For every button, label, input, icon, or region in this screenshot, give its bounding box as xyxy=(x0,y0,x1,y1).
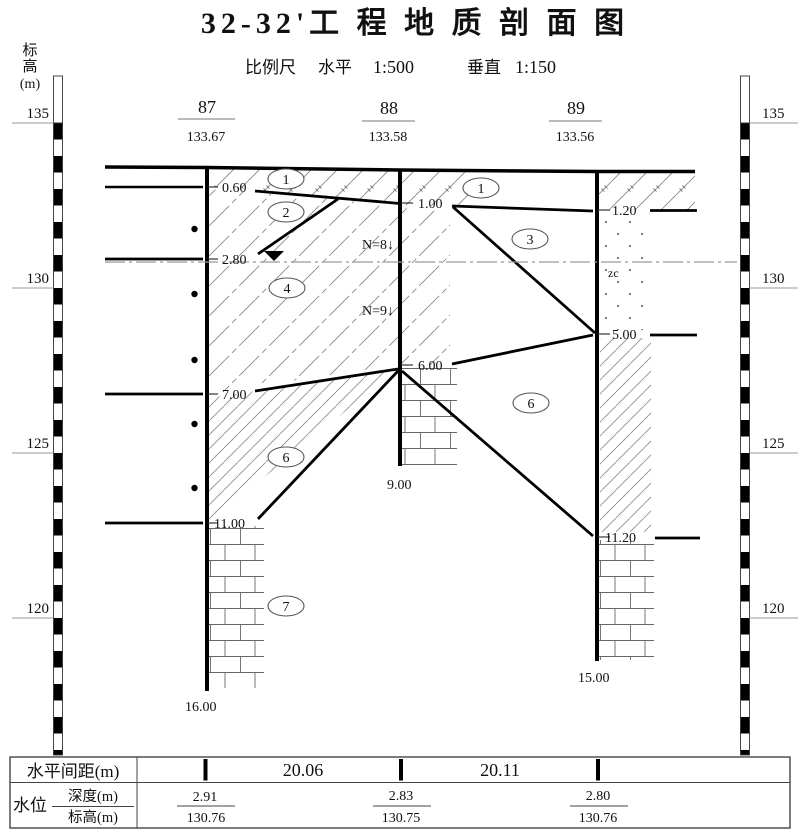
scale-bar-text: 比例尺 水平 1:500 垂直 1:150 xyxy=(245,57,556,77)
spacing-value-87-88: 20.06 xyxy=(283,760,324,780)
layer-badge-4-label: 4 xyxy=(284,282,291,297)
layer-badge-1b-label: 1 xyxy=(478,182,485,197)
sample-dot xyxy=(191,357,197,363)
layer4-bottom-89-88 xyxy=(452,335,593,364)
right-staff xyxy=(741,123,750,755)
sample-dot xyxy=(191,291,197,297)
layer-badge-1a: 1 xyxy=(268,169,304,189)
borehole-88-elevation: 133.58 xyxy=(369,130,408,145)
bh87-bottom-depth: 16.00 xyxy=(185,700,217,715)
water-depth-88: 2.83 xyxy=(389,789,414,804)
scale-label: 比例尺 xyxy=(245,58,296,77)
limestone-column-88 xyxy=(402,368,457,465)
water-elev-88: 130.75 xyxy=(382,811,421,826)
scale-vertical-value: 1:150 xyxy=(515,57,556,77)
bh88-depth-1-00: 1.00 xyxy=(418,197,443,212)
spt-n9-label: N=9↓ xyxy=(362,304,394,319)
borehole-89-elevation: 133.56 xyxy=(556,130,595,145)
layer-badge-6b-label: 6 xyxy=(528,397,535,412)
scale-vertical-label: 垂直 xyxy=(467,58,501,77)
clay-hatch-right-of-88 xyxy=(402,208,450,365)
layer-badge-2: 2 xyxy=(268,202,304,222)
water-elev-87: 130.76 xyxy=(187,811,226,826)
bh89-bottom-depth: 15.00 xyxy=(578,671,610,686)
scale-horizontal-value: 1:500 xyxy=(373,57,414,77)
layer-badge-6a: 6 xyxy=(268,447,304,467)
axis-label-char1: 标 xyxy=(22,42,37,59)
page-title: 32-32'工 程 地 质 剖 面 图 xyxy=(201,7,629,40)
bh88-bottom-depth: 9.00 xyxy=(387,478,412,493)
limestone-column-89 xyxy=(599,540,654,660)
layer-badge-3: 3 xyxy=(512,229,548,249)
layer3-bottom-88-89 xyxy=(453,207,595,333)
borehole-88-id: 88 xyxy=(380,98,398,118)
water-depth-header: 深度(m) xyxy=(68,788,118,805)
layer-badge-3-label: 3 xyxy=(527,233,534,248)
borehole-87-id: 87 xyxy=(198,97,216,117)
geological-profile-page: 32-32'工 程 地 质 剖 面 图 比例尺 水平 1:500 垂直 1:15… xyxy=(0,0,800,838)
limestone-column-87 xyxy=(209,526,264,688)
left-staff-blank-top xyxy=(54,76,63,123)
water-level-table: 水平间距(m) 20.06 20.11 水位 深度(m) 标高(m) 2.91 … xyxy=(10,757,790,828)
water-elev-89: 130.76 xyxy=(579,811,618,826)
spacing-value-88-89: 20.11 xyxy=(480,760,520,780)
sample-dot xyxy=(191,485,197,491)
bh87-depth-2-80: 2.80 xyxy=(222,253,247,268)
layer-badge-4: 4 xyxy=(269,278,305,298)
layer-badge-1a-label: 1 xyxy=(283,173,290,188)
layer-badge-6b: 6 xyxy=(513,393,549,413)
left-tick-label-130: 130 xyxy=(27,271,50,287)
bh89-depth-1-20: 1.20 xyxy=(612,204,637,219)
left-tick-label-125: 125 xyxy=(27,436,50,452)
layer-badge-7: 7 xyxy=(268,596,304,616)
spacing-row-label: 水平间距(m) xyxy=(27,762,120,781)
axis-label-char2: 高 xyxy=(22,58,37,75)
layer-badge-6a-label: 6 xyxy=(283,451,290,466)
borehole-87-elevation: 133.67 xyxy=(187,130,226,145)
right-tick-label-125: 125 xyxy=(762,436,785,452)
bh87-depth-7-00: 7.00 xyxy=(222,388,247,403)
layer-badge-2-label: 2 xyxy=(283,206,290,221)
sample-dots xyxy=(191,226,197,491)
bh87-depth-0-60: 0.60 xyxy=(222,181,247,196)
right-tick-label-120: 120 xyxy=(762,601,785,617)
spt-n8-label: N=8↓ xyxy=(362,238,394,253)
geological-section-canvas: 32-32'工 程 地 质 剖 面 图 比例尺 水平 1:500 垂直 1:15… xyxy=(0,0,800,838)
right-staff-blank-top xyxy=(741,76,750,123)
axis-label-unit: (m) xyxy=(20,77,41,92)
zc-label: zc xyxy=(608,266,619,280)
layer-badge-1b: 1 xyxy=(463,178,499,198)
borehole-89-id: 89 xyxy=(567,98,585,118)
left-staff xyxy=(54,123,63,755)
left-elevation-axis: 标 高 (m) 135 130 125 120 xyxy=(12,42,63,755)
water-elev-header: 标高(m) xyxy=(68,809,118,826)
bh87-depth-11-00: 11.00 xyxy=(214,517,245,532)
right-elevation-axis: 135 130 125 120 xyxy=(741,76,799,755)
water-depth-89: 2.80 xyxy=(586,789,611,804)
layer6-hatch-right-of-89 xyxy=(600,338,651,532)
right-tick-label-130: 130 xyxy=(762,271,785,287)
bh89-depth-11-20: 11.20 xyxy=(605,531,636,546)
bh89-depth-5-00: 5.00 xyxy=(612,328,637,343)
sample-dot xyxy=(191,226,197,232)
sample-dot xyxy=(191,421,197,427)
layer1-bottom-88-89 xyxy=(452,206,593,211)
borehole-headers: 87 133.67 88 133.58 89 133.56 xyxy=(178,97,602,145)
water-row-label: 水位 xyxy=(13,796,47,815)
water-depth-87: 2.91 xyxy=(193,790,218,805)
layer-badge-7-label: 7 xyxy=(283,600,290,615)
right-tick-label-135: 135 xyxy=(762,106,785,122)
scale-horizontal-label: 水平 xyxy=(318,58,352,77)
soil-hatch-regions xyxy=(207,168,695,532)
bh88-depth-6-00: 6.00 xyxy=(418,359,443,374)
left-tick-label-120: 120 xyxy=(27,601,50,617)
left-tick-label-135: 135 xyxy=(27,106,50,122)
